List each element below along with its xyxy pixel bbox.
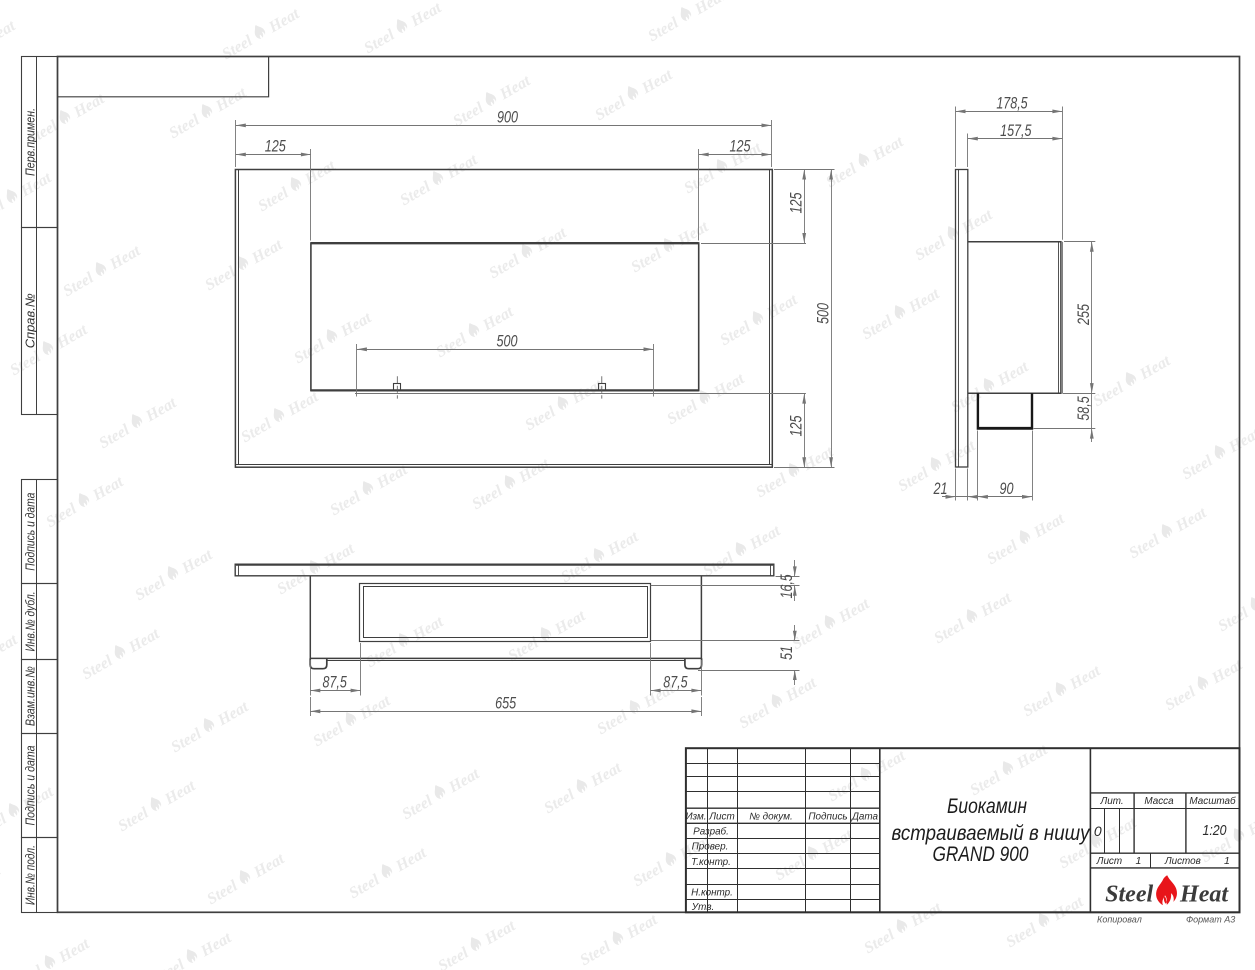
svg-text:1: 1 — [1224, 855, 1230, 867]
svg-text:Лист: Лист — [708, 812, 734, 823]
svg-text:Листов: Листов — [1164, 856, 1201, 867]
svg-text:21: 21 — [933, 479, 948, 498]
svg-text:Подпись: Подпись — [808, 812, 847, 823]
svg-text:Изм.: Изм. — [685, 812, 706, 823]
svg-text:655: 655 — [495, 694, 516, 713]
svg-text:Лит.: Лит. — [1099, 796, 1123, 807]
svg-text:Масштаб: Масштаб — [1189, 796, 1236, 807]
svg-text:16,5: 16,5 — [777, 574, 796, 599]
svg-text:1: 1 — [1135, 855, 1141, 867]
svg-text:Инв.№ дубл.: Инв.№ дубл. — [23, 591, 38, 651]
svg-text:Т.контр.: Т.контр. — [691, 857, 731, 868]
svg-text:Копировал: Копировал — [1097, 915, 1142, 925]
svg-text:125: 125 — [730, 137, 751, 156]
svg-text:51: 51 — [777, 646, 796, 660]
svg-text:178,5: 178,5 — [996, 94, 1028, 113]
svg-text:Н.контр.: Н.контр. — [691, 888, 733, 899]
svg-text:500: 500 — [497, 332, 518, 351]
svg-text:Инв.№ подл.: Инв.№ подл. — [23, 845, 38, 905]
svg-text:125: 125 — [787, 192, 806, 213]
svg-text:Провер.: Провер. — [692, 842, 729, 853]
svg-text:Heat: Heat — [1179, 882, 1229, 908]
svg-text:Разраб.: Разраб. — [693, 826, 729, 837]
svg-text:58,5: 58,5 — [1074, 396, 1093, 421]
svg-text:255: 255 — [1074, 304, 1093, 326]
svg-text:Формат А3: Формат А3 — [1186, 915, 1235, 925]
svg-text:125: 125 — [265, 137, 286, 156]
svg-text:Утв.: Утв. — [691, 902, 714, 913]
svg-text:№ докум.: № докум. — [749, 812, 793, 823]
svg-text:87,5: 87,5 — [323, 673, 348, 692]
svg-text:90: 90 — [1000, 479, 1014, 498]
svg-text:Дата: Дата — [851, 812, 879, 823]
svg-text:1:20: 1:20 — [1203, 822, 1228, 839]
svg-text:Подпись и дата: Подпись и дата — [23, 493, 38, 571]
svg-text:GRAND 900: GRAND 900 — [933, 843, 1029, 866]
svg-text:900: 900 — [497, 108, 518, 127]
svg-text:87,5: 87,5 — [663, 673, 688, 692]
svg-text:Масса: Масса — [1144, 796, 1174, 807]
svg-text:125: 125 — [787, 415, 806, 436]
svg-text:Биокамин: Биокамин — [947, 795, 1027, 818]
svg-text:Справ.№: Справ.№ — [23, 293, 38, 348]
svg-text:Взам.инв.№: Взам.инв.№ — [23, 666, 38, 726]
svg-text:0: 0 — [1094, 823, 1102, 839]
svg-text:Подпись и дата: Подпись и дата — [23, 746, 38, 826]
svg-text:Перв.примен.: Перв.примен. — [23, 108, 38, 176]
svg-text:встраиваемый в нишу: встраиваемый в нишу — [892, 822, 1091, 845]
svg-text:500: 500 — [814, 303, 833, 324]
svg-text:Steel: Steel — [1105, 882, 1153, 908]
svg-text:Лист: Лист — [1096, 856, 1122, 867]
svg-text:157,5: 157,5 — [1000, 121, 1032, 140]
